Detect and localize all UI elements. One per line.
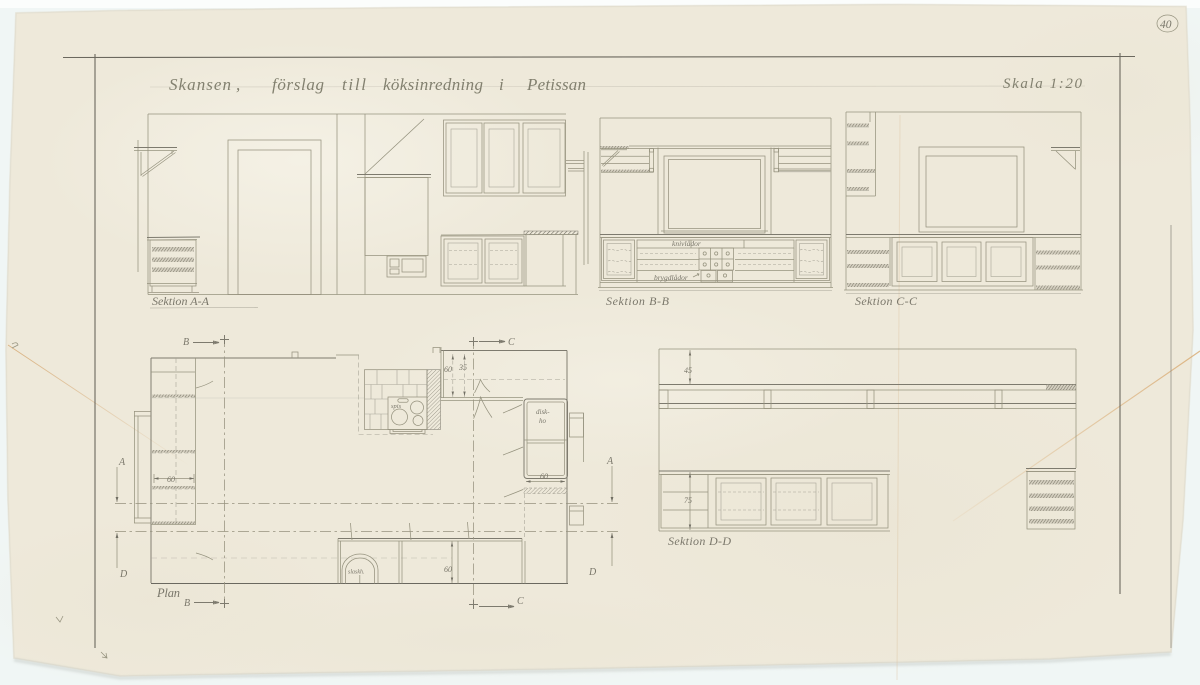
svg-text:B: B <box>183 337 189 348</box>
svg-text:B: B <box>184 598 190 609</box>
svg-text:Sektion D-D: Sektion D-D <box>668 534 731 548</box>
svg-text:ho: ho <box>539 417 547 425</box>
svg-text:A: A <box>606 456 614 467</box>
svg-text:35: 35 <box>458 363 467 372</box>
svg-text:förslag: förslag <box>272 75 324 94</box>
svg-text:spis: spis <box>391 403 402 410</box>
svg-text:C: C <box>508 337 515 348</box>
svg-text:disk-: disk- <box>536 408 550 416</box>
svg-text:D: D <box>119 569 128 580</box>
svg-text:till: till <box>342 75 366 94</box>
svg-text:i: i <box>499 75 504 94</box>
svg-text:Skansen: Skansen <box>169 75 231 94</box>
svg-text:75: 75 <box>684 496 692 505</box>
svg-text:C: C <box>517 596 524 607</box>
svg-text:,: , <box>236 75 240 94</box>
svg-text:40: 40 <box>1160 19 1172 31</box>
svg-text:slaskh.: slaskh. <box>348 570 365 576</box>
svg-text:Sektion B-B: Sektion B-B <box>606 294 670 308</box>
svg-text:60: 60 <box>540 472 548 481</box>
svg-text:brygdlådor: brygdlådor <box>654 273 688 282</box>
svg-text:Petissan: Petissan <box>526 75 586 94</box>
svg-text:knivlådor: knivlådor <box>672 239 701 248</box>
svg-text:A: A <box>118 457 126 468</box>
svg-text:Sektion C-C: Sektion C-C <box>855 294 918 308</box>
svg-text:60: 60 <box>444 565 452 574</box>
svg-text:60: 60 <box>444 365 452 374</box>
svg-text:Plan: Plan <box>156 586 180 600</box>
svg-text:Sektion A-A: Sektion A-A <box>152 294 210 308</box>
svg-text:köksinredning: köksinredning <box>383 75 483 94</box>
svg-text:45: 45 <box>684 366 692 375</box>
svg-text:D: D <box>588 567 597 578</box>
svg-text:60: 60 <box>167 475 175 484</box>
